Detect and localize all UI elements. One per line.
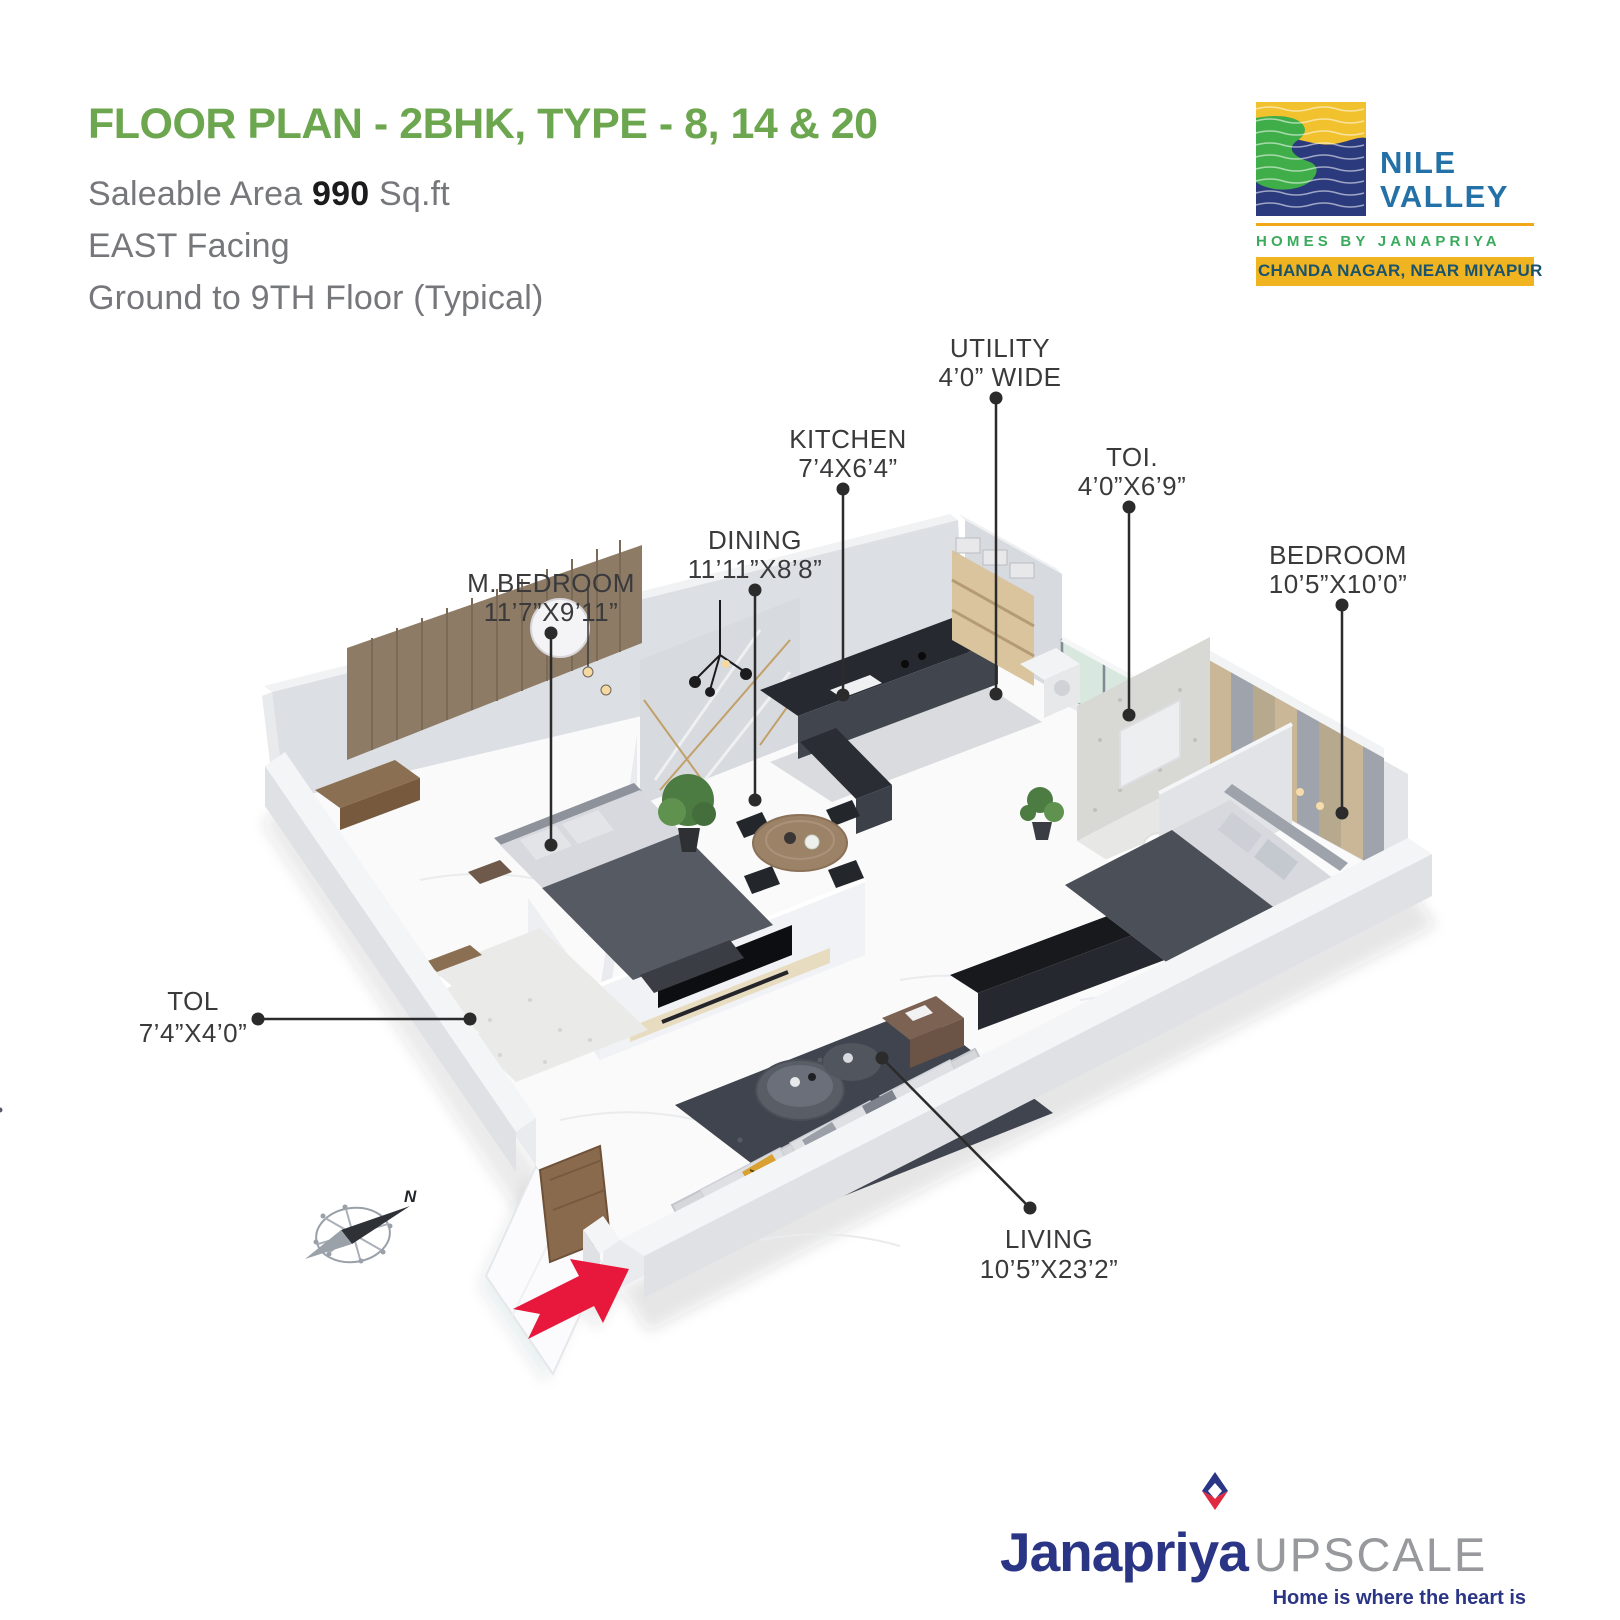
table-vase bbox=[784, 832, 796, 844]
basket bbox=[956, 538, 980, 553]
room-size: 11’11”X8’8” bbox=[688, 554, 823, 584]
room-size: 4’0” WIDE bbox=[939, 362, 1062, 392]
wall-lamp-2 bbox=[1316, 802, 1324, 810]
janapriya-logo: Janapriya UPSCALE Home is where the hear… bbox=[1000, 1462, 1530, 1610]
room-name: M.BEDROOM bbox=[467, 568, 635, 598]
table-decor bbox=[790, 1077, 800, 1087]
room-name: DINING bbox=[708, 525, 802, 555]
janapriya-tagline: Home is where the heart is bbox=[1000, 1587, 1530, 1610]
room-name: BEDROOM bbox=[1269, 540, 1407, 570]
room-size: 10’5”X23’2” bbox=[980, 1254, 1118, 1284]
coffee-table-top bbox=[767, 1065, 833, 1107]
janapriya-wordmark: Janapriya UPSCALE bbox=[1000, 1520, 1530, 1584]
floor-plan-illustration: UTILITY 4’0” WIDE KITCHEN 7’4X6’4” TOI. … bbox=[0, 0, 1620, 1620]
room-size: 7’4”X4’0” bbox=[139, 1018, 248, 1048]
basket-3 bbox=[1010, 563, 1034, 578]
wall-lamp bbox=[1296, 788, 1304, 796]
cooktop-burner bbox=[901, 660, 909, 668]
room-name: TOL bbox=[167, 986, 219, 1016]
room-name: KITCHEN bbox=[789, 424, 907, 454]
room-size: 11’7”X9’11” bbox=[484, 597, 619, 627]
table-decor-3 bbox=[843, 1053, 853, 1063]
janapriya-gem-icon bbox=[1200, 1470, 1230, 1512]
pendant-light bbox=[583, 667, 593, 677]
washing-machine-door bbox=[1054, 680, 1070, 696]
room-name: TOI. bbox=[1106, 442, 1158, 472]
room-size: 10’5”X10’0” bbox=[1269, 569, 1407, 599]
flyer-page: FLOOR PLAN - 2BHK, TYPE - 8, 14 & 20 Sal… bbox=[0, 0, 1620, 1620]
janapriya-text: Janapriya bbox=[1000, 1520, 1248, 1584]
room-size: 7’4X6’4” bbox=[798, 453, 897, 483]
coffee-table-2 bbox=[823, 1043, 881, 1081]
room-name: UTILITY bbox=[950, 333, 1050, 363]
room-name: LIVING bbox=[1005, 1224, 1093, 1254]
pendant-light-2 bbox=[601, 685, 611, 695]
compass-icon: N bbox=[305, 1187, 417, 1267]
table-flowers bbox=[805, 835, 819, 849]
cooktop-burner-2 bbox=[918, 652, 926, 660]
room-size: 4’0”X6’9” bbox=[1078, 471, 1187, 501]
compass-north-label: N bbox=[404, 1187, 417, 1206]
table-decor-2 bbox=[808, 1073, 816, 1081]
upscale-text: UPSCALE bbox=[1254, 1527, 1487, 1582]
